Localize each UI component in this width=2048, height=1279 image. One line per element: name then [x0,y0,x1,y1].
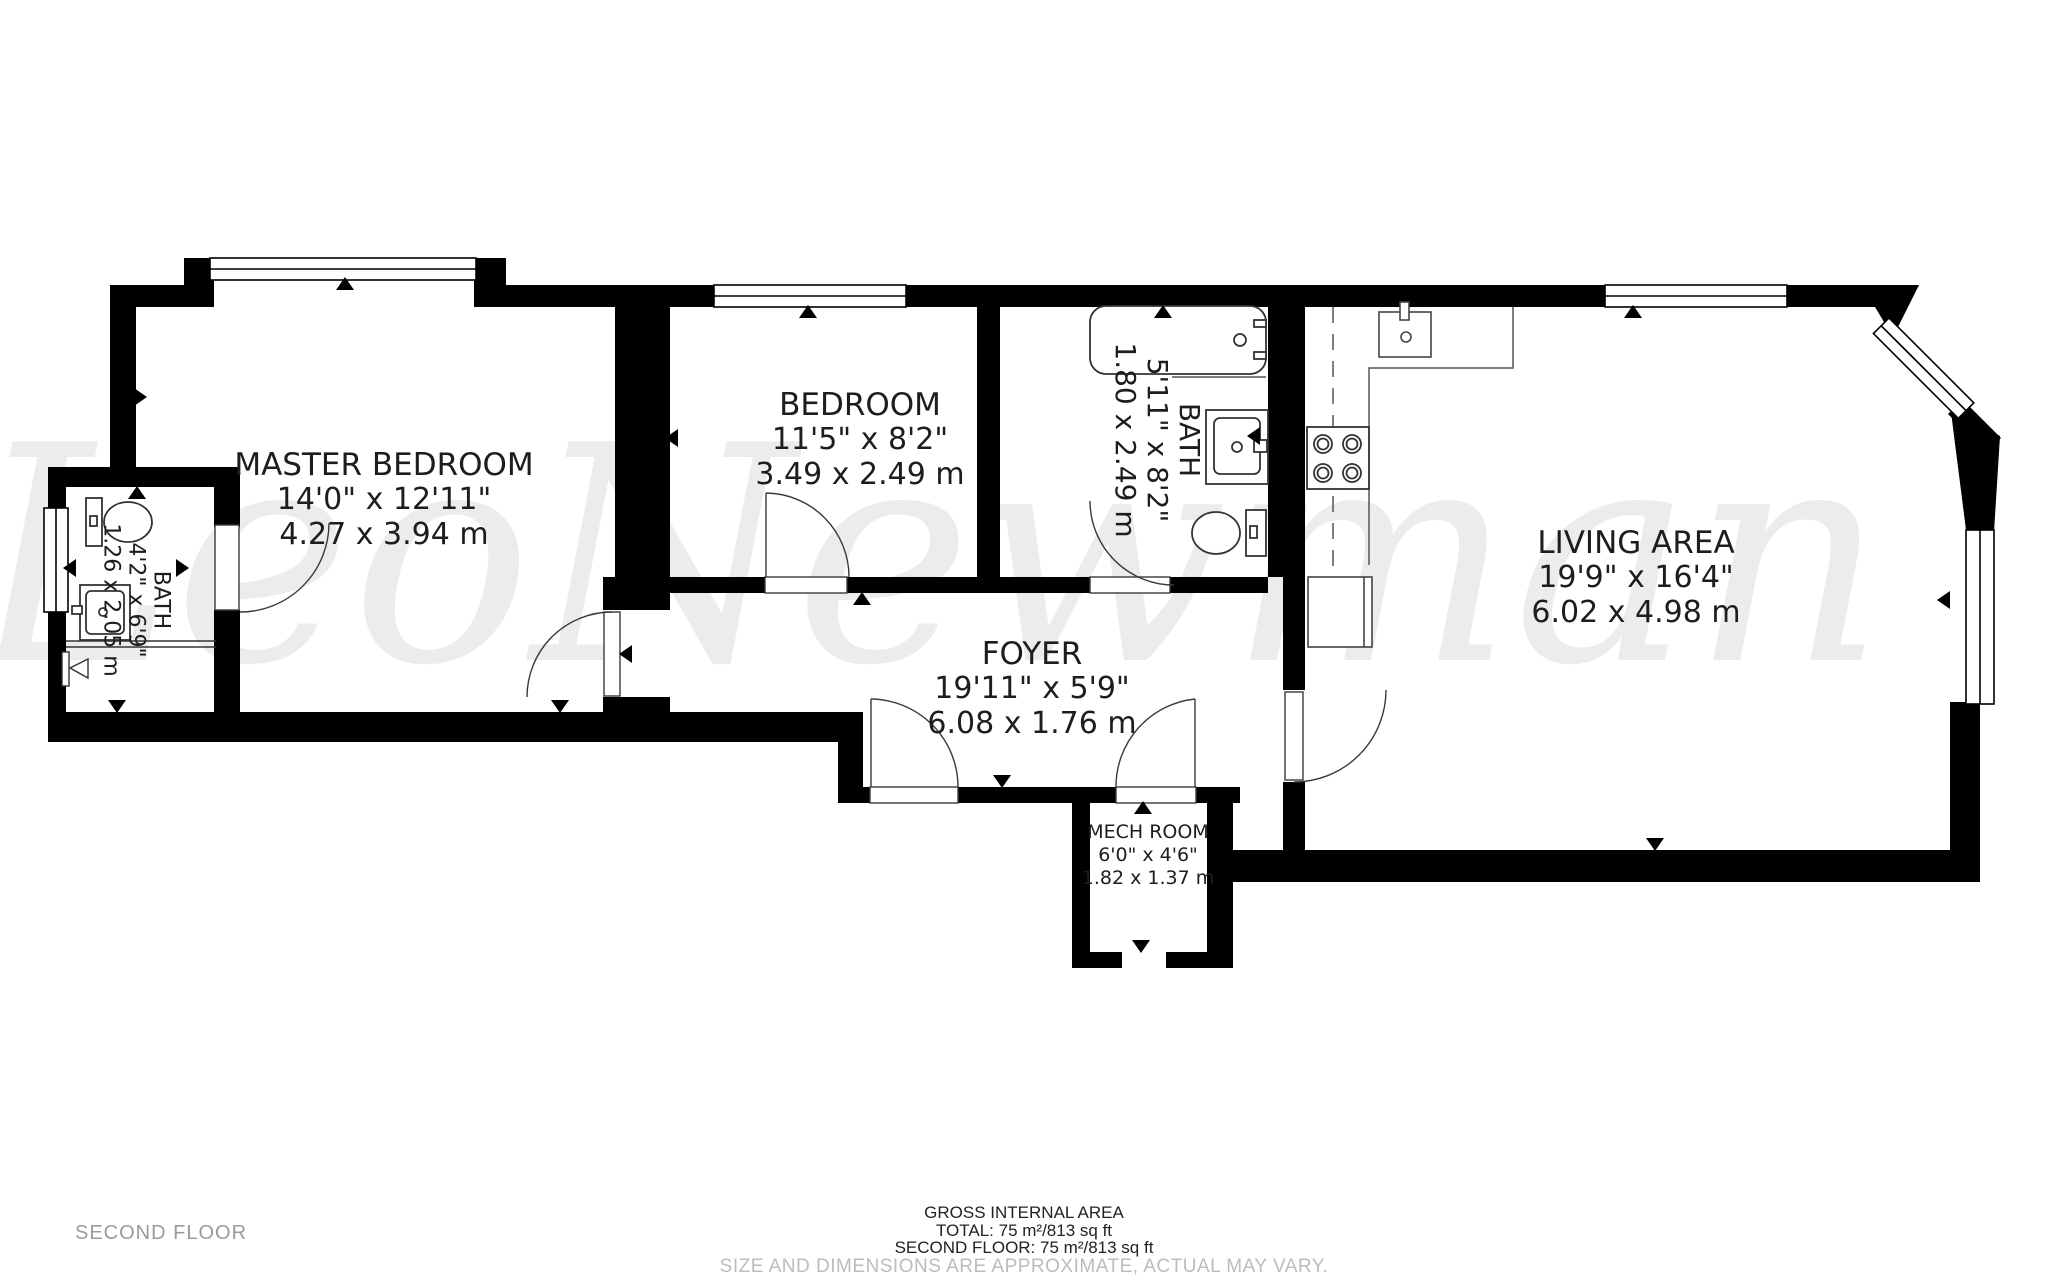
window-living-top [1605,285,1787,307]
room-label-living-area: LIVING AREA 19'9" x 16'4" 6.02 x 4.98 m [1531,526,1740,630]
summary-floor-total: SECOND FLOOR: 75 m²/813 sq ft [0,1239,2048,1256]
summary-total: TOTAL: 75 m²/813 sq ft [0,1222,2048,1239]
room-label-bath: BATH 5'11" x 8'2" 1.80 x 2.49 m [1109,342,1205,537]
window-bedroom [714,285,906,307]
summary-title: GROSS INTERNAL AREA [0,1204,2048,1221]
measure-arrow-icon [1132,940,1150,953]
window-living-right [1966,530,1994,704]
room-label-master-bedroom: MASTER BEDROOM 14'0" x 12'11" 4.27 x 3.9… [234,448,533,552]
measure-arrow-icon [993,775,1011,788]
stove-icon [1307,427,1369,489]
room-label-bedroom: BEDROOM 11'5" x 8'2" 3.49 x 2.49 m [755,388,964,492]
area-summary: GROSS INTERNAL AREA TOTAL: 75 m²/813 sq … [0,1204,2048,1275]
window-master-bedroom [210,258,476,280]
floor-label: SECOND FLOOR [75,1222,247,1245]
measure-arrow-icon [1646,838,1664,851]
kitchen-sink-icon [1379,302,1431,357]
room-label-mech-room: MECH ROOM 6'0" x 4'6" 1.82 x 1.37 m [1082,821,1214,891]
bath-sink-icon [1206,410,1268,484]
room-label-foyer: FOYER 19'11" x 5'9" 6.08 x 1.76 m [927,637,1136,741]
floor-plan-page: LeoNewman [0,0,2048,1279]
room-label-bath-2: BATH 4'2" x 6'9" 1.26 x 2.05 m [98,523,173,676]
window-living-bay [1873,318,1973,418]
kitchen-appliance-icon [1308,577,1372,647]
measure-arrow-icon [1937,591,1950,609]
window-bath-annex [44,508,68,612]
summary-disclaimer: SIZE AND DIMENSIONS ARE APPROXIMATE, ACT… [0,1258,2048,1275]
mech-room-opening [1122,952,1166,968]
